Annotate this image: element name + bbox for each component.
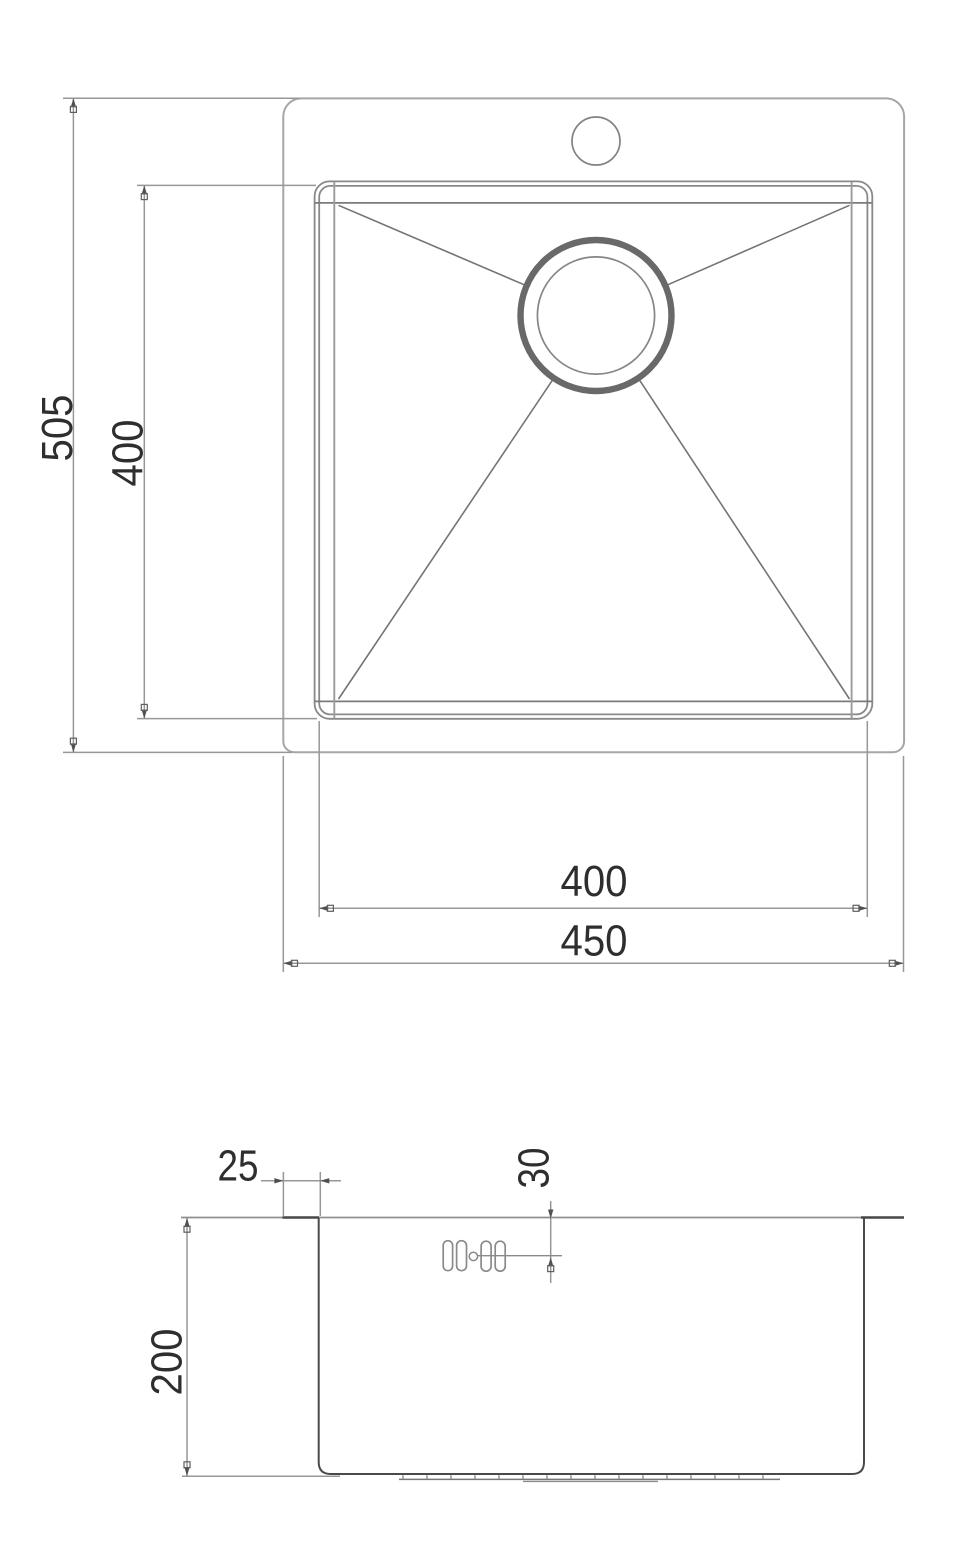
svg-text:25: 25 [218,1142,259,1191]
svg-text:30: 30 [510,1148,559,1189]
svg-text:450: 450 [561,917,628,966]
svg-text:400: 400 [561,857,628,906]
svg-text:400: 400 [104,420,153,487]
svg-text:200: 200 [143,1329,192,1396]
svg-text:505: 505 [33,395,82,462]
